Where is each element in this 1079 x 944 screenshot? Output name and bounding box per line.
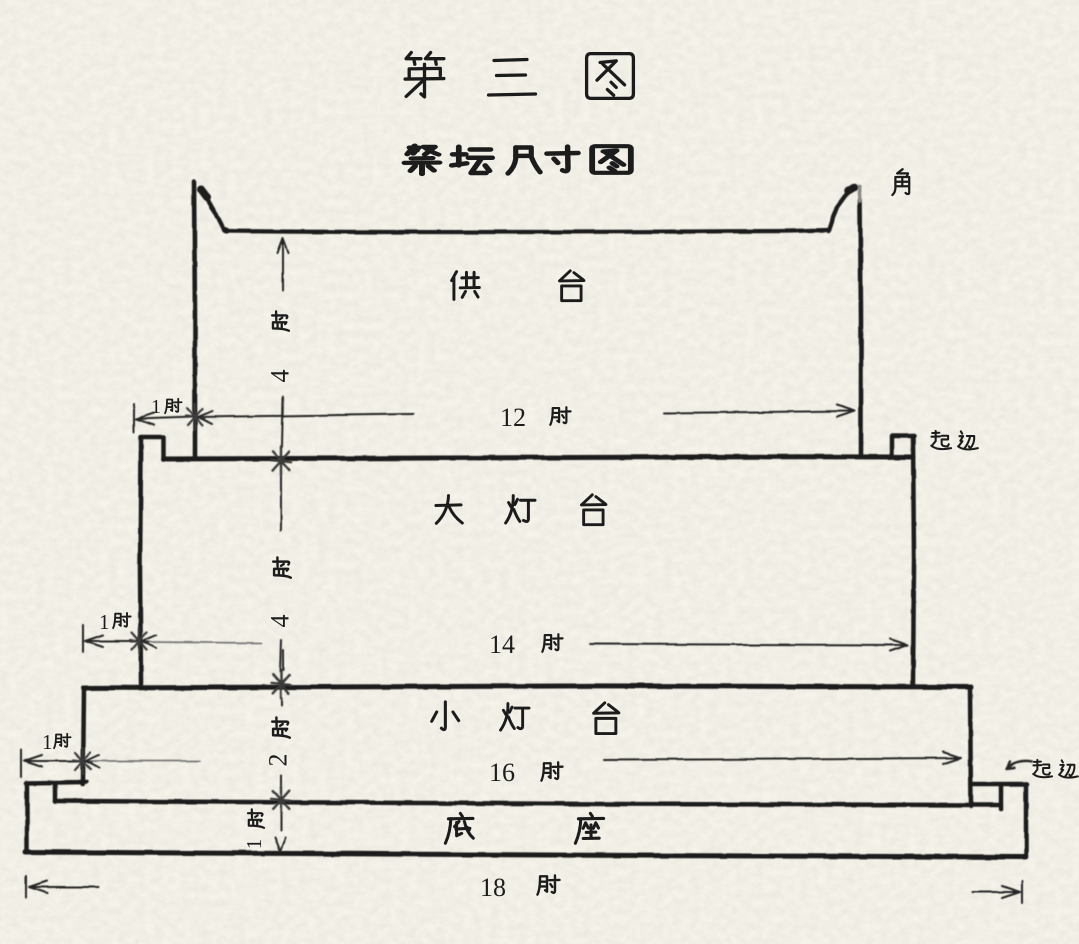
- svg-text:1: 1: [42, 730, 53, 754]
- svg-text:2: 2: [264, 754, 293, 767]
- svg-text:14: 14: [489, 630, 515, 659]
- svg-text:16: 16: [489, 758, 515, 787]
- svg-text:1: 1: [242, 839, 266, 850]
- svg-text:1: 1: [151, 396, 161, 418]
- svg-text:4: 4: [266, 615, 295, 628]
- svg-text:4: 4: [266, 370, 295, 383]
- svg-text:18: 18: [480, 873, 506, 902]
- svg-text:12: 12: [500, 403, 526, 432]
- svg-text:1: 1: [99, 610, 110, 634]
